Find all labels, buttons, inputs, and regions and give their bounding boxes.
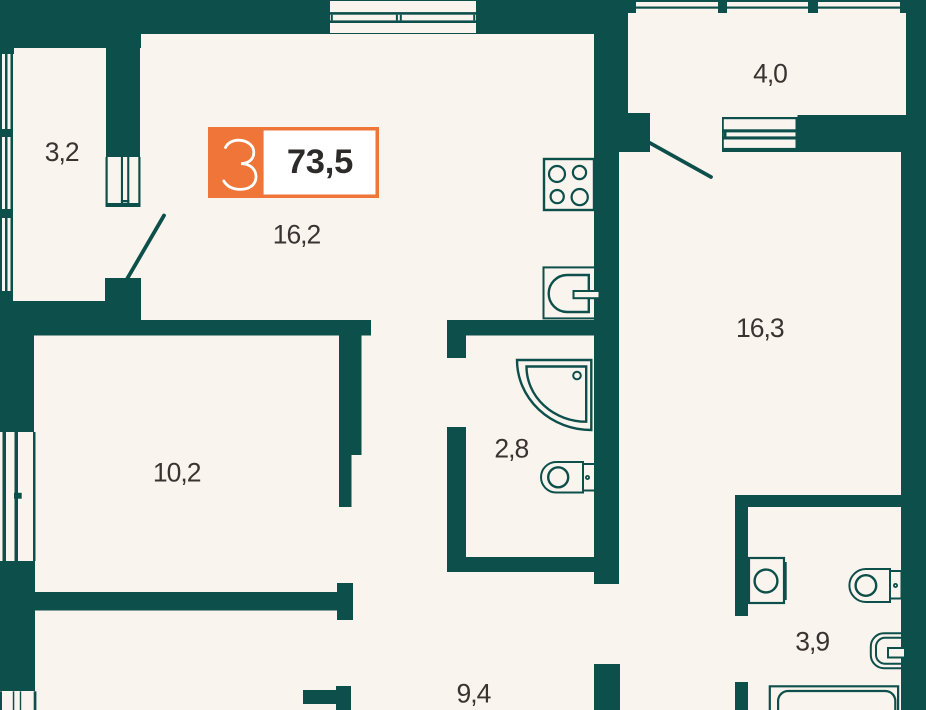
svg-text:73,5: 73,5: [287, 143, 353, 181]
svg-text:16,2: 16,2: [273, 220, 321, 250]
svg-text:9,4: 9,4: [456, 679, 490, 709]
svg-text:3,9: 3,9: [795, 627, 829, 657]
svg-text:10,2: 10,2: [153, 457, 201, 487]
svg-text:4,0: 4,0: [753, 59, 787, 89]
svg-text:3,2: 3,2: [45, 137, 79, 167]
svg-text:2,8: 2,8: [494, 434, 528, 464]
svg-text:16,3: 16,3: [736, 313, 784, 343]
